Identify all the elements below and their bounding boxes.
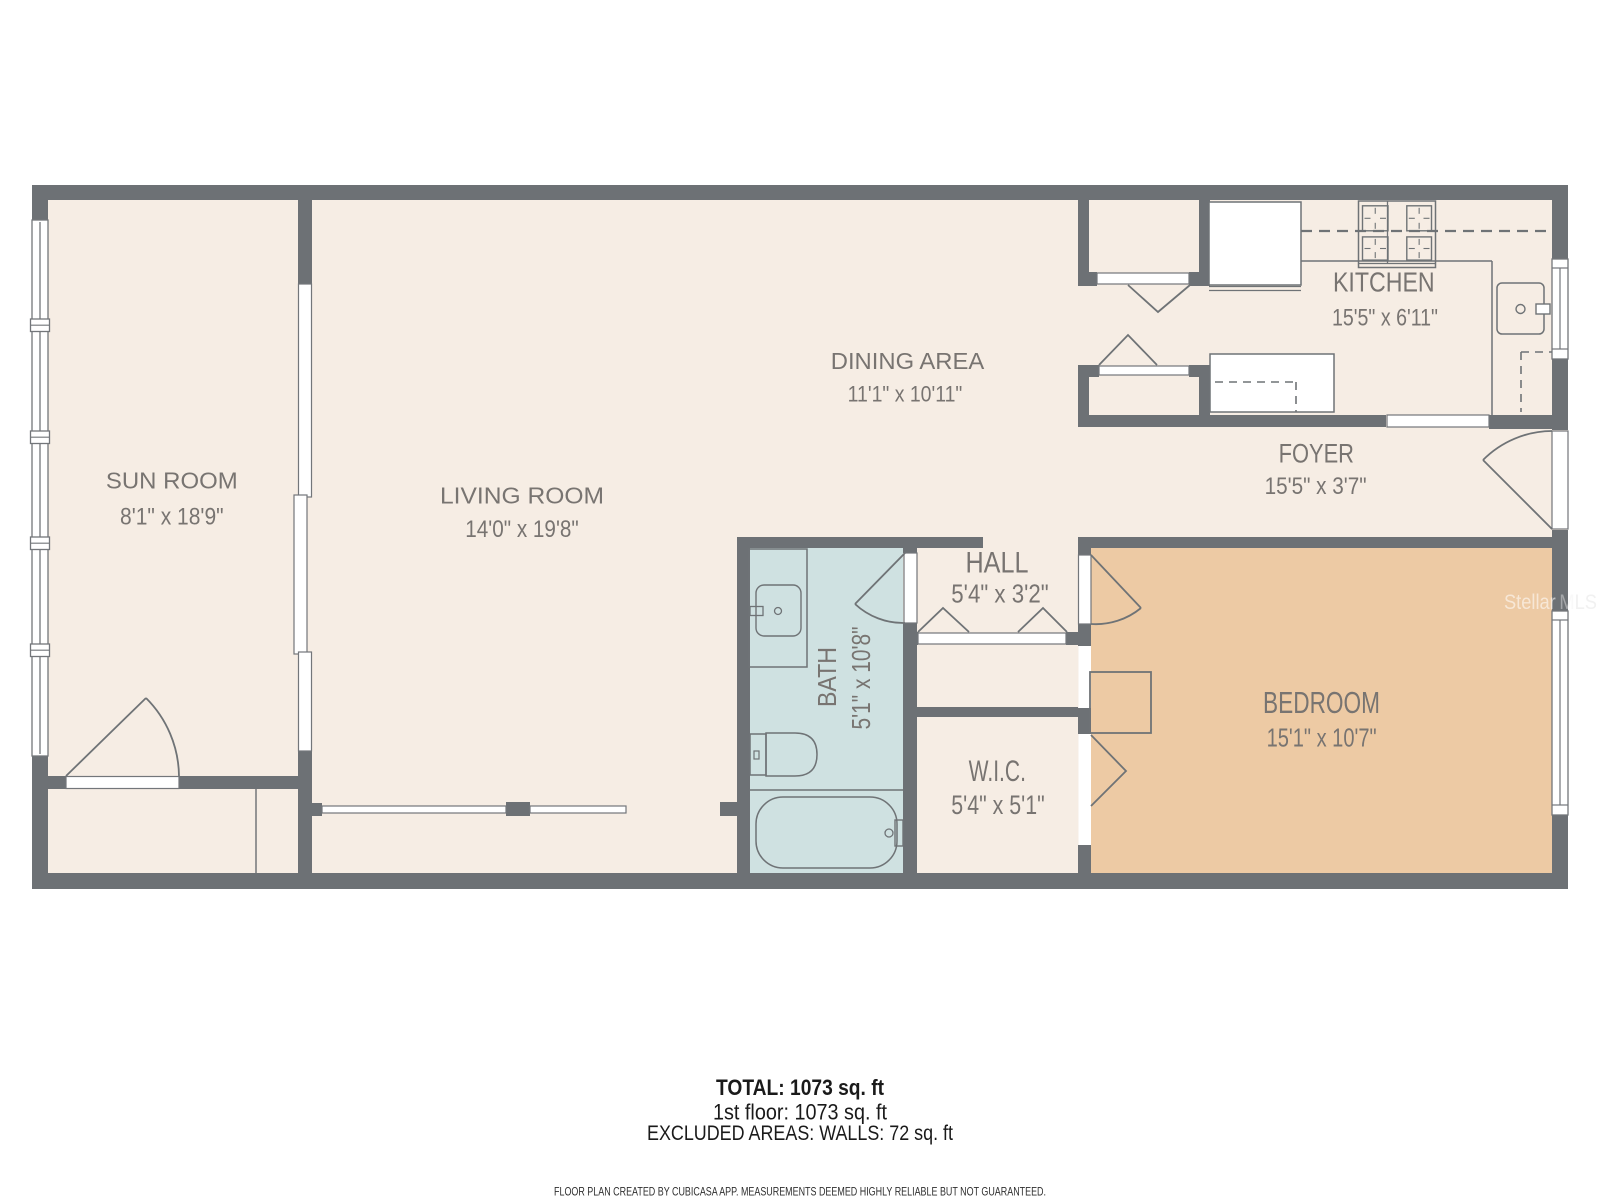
svg-text:11'1" x 10'11": 11'1" x 10'11" xyxy=(848,382,963,407)
svg-text:EXCLUDED AREAS: WALLS: 72 sq.: EXCLUDED AREAS: WALLS: 72 sq. ft xyxy=(647,1122,953,1145)
svg-text:15'5" x 6'11": 15'5" x 6'11" xyxy=(1332,305,1438,332)
svg-text:8'1" x 18'9": 8'1" x 18'9" xyxy=(120,504,224,531)
svg-text:FOYER: FOYER xyxy=(1279,438,1354,468)
svg-text:HALL: HALL xyxy=(966,547,1029,580)
svg-text:5'4" x 5'1": 5'4" x 5'1" xyxy=(951,790,1044,820)
svg-text:SUN ROOM: SUN ROOM xyxy=(106,468,238,494)
svg-text:5'1" x 10'8": 5'1" x 10'8" xyxy=(846,627,876,730)
svg-text:LIVING ROOM: LIVING ROOM xyxy=(440,483,604,509)
svg-text:FLOOR PLAN CREATED BY CUBICASA: FLOOR PLAN CREATED BY CUBICASA APP. MEAS… xyxy=(554,1187,1046,1199)
svg-text:TOTAL: 1073 sq. ft: TOTAL: 1073 sq. ft xyxy=(716,1075,885,1100)
svg-text:Stellar MLS: Stellar MLS xyxy=(1504,590,1597,614)
svg-text:BATH: BATH xyxy=(812,647,842,707)
svg-text:W.I.C.: W.I.C. xyxy=(969,755,1026,788)
svg-text:14'0" x 19'8": 14'0" x 19'8" xyxy=(465,516,579,543)
svg-text:15'5" x 3'7": 15'5" x 3'7" xyxy=(1265,473,1367,500)
svg-text:KITCHEN: KITCHEN xyxy=(1333,267,1435,298)
svg-text:DINING AREA: DINING AREA xyxy=(831,348,985,374)
svg-text:15'1" x 10'7": 15'1" x 10'7" xyxy=(1267,723,1377,753)
svg-text:1st floor: 1073 sq. ft: 1st floor: 1073 sq. ft xyxy=(713,1100,887,1125)
svg-text:5'4" x 3'2": 5'4" x 3'2" xyxy=(951,579,1048,609)
svg-text:BEDROOM: BEDROOM xyxy=(1263,685,1380,720)
